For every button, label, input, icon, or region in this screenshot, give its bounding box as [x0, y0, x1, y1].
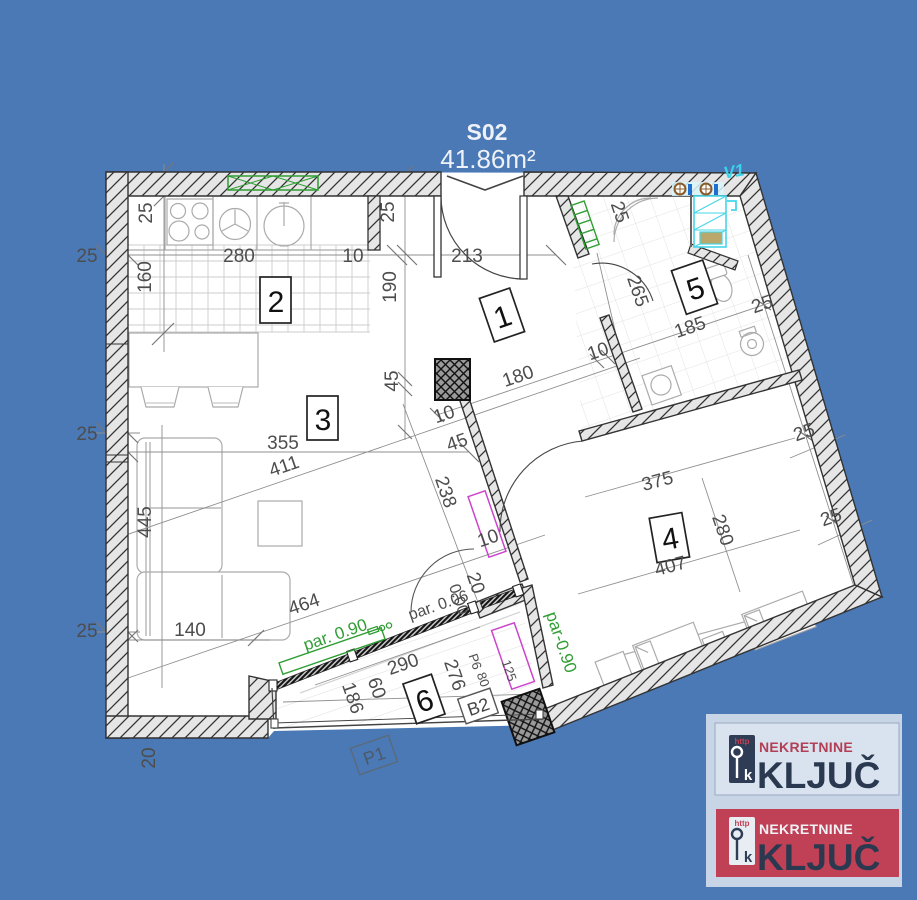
svg-text:V1: V1 [722, 160, 746, 182]
svg-text:445: 445 [135, 506, 156, 538]
svg-text:NEKRETNINE: NEKRETNINE [759, 739, 853, 755]
svg-text:10: 10 [342, 246, 363, 267]
svg-text:NEKRETNINE: NEKRETNINE [759, 821, 853, 837]
svg-text:160: 160 [135, 261, 156, 293]
svg-text:140: 140 [174, 620, 206, 641]
svg-text:k: k [744, 849, 753, 866]
svg-text:355: 355 [267, 433, 299, 454]
svg-text:25: 25 [76, 621, 97, 642]
svg-text:20: 20 [139, 747, 160, 768]
svg-text:http: http [734, 819, 749, 828]
svg-text:25: 25 [378, 201, 399, 222]
svg-text:45: 45 [382, 370, 403, 391]
svg-text:41.86m²: 41.86m² [440, 144, 536, 174]
svg-text:k: k [744, 767, 753, 784]
svg-text:280: 280 [223, 246, 255, 267]
svg-text:KLJUČ: KLJUČ [757, 836, 880, 878]
svg-text:3: 3 [315, 404, 332, 437]
svg-text:2: 2 [268, 286, 285, 319]
svg-text:http: http [734, 737, 749, 746]
svg-text:S02: S02 [467, 119, 508, 145]
svg-text:25: 25 [76, 424, 97, 445]
svg-text:25: 25 [76, 246, 97, 267]
svg-text:KLJUČ: KLJUČ [757, 754, 880, 796]
svg-text:213: 213 [451, 246, 483, 267]
svg-text:190: 190 [380, 271, 401, 303]
svg-text:25: 25 [136, 202, 157, 223]
